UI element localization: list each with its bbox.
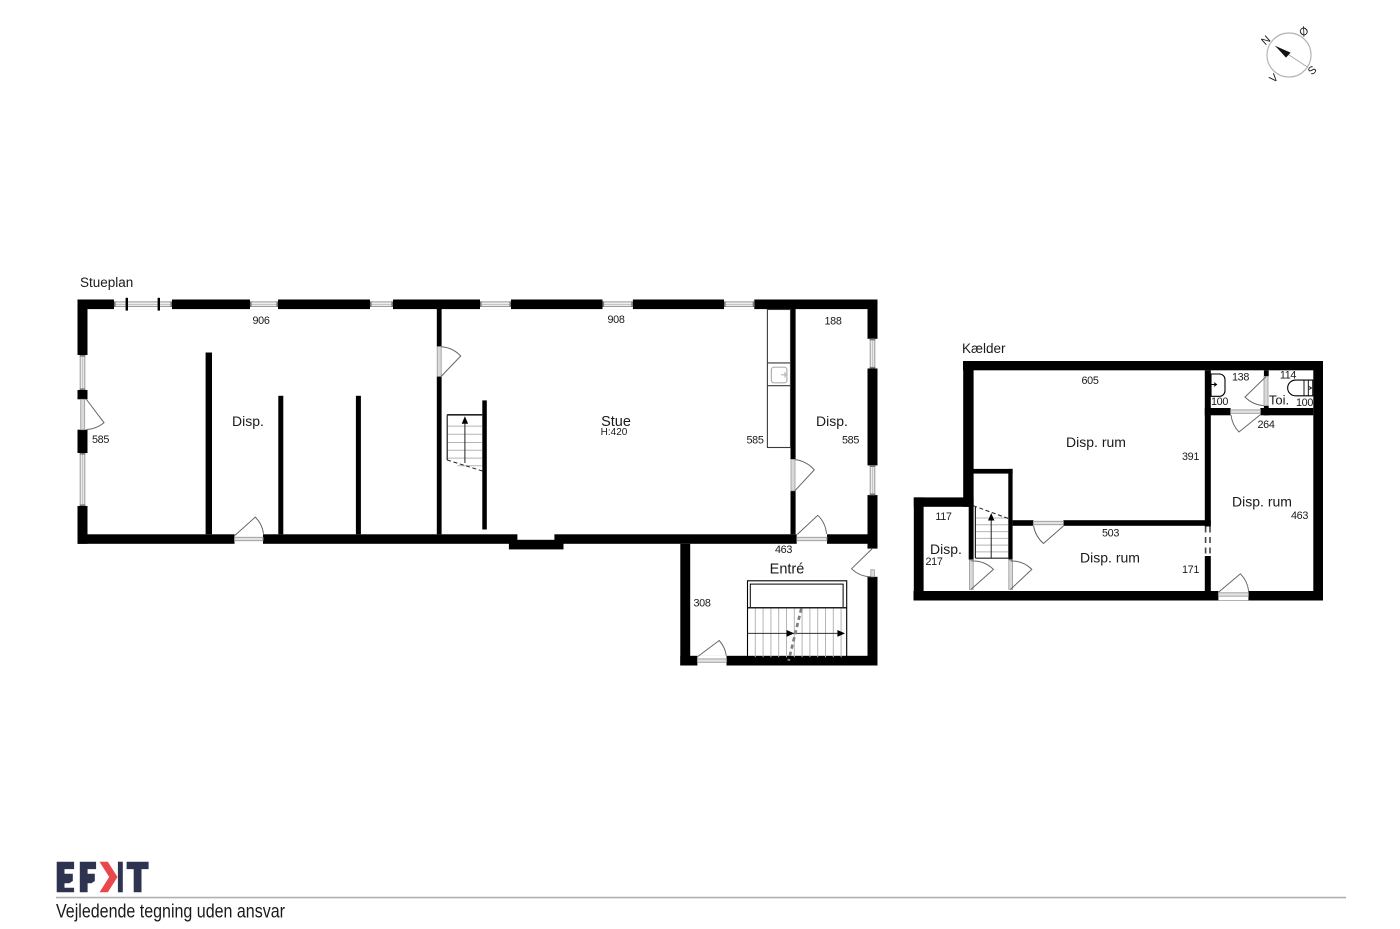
svg-text:Kælder: Kælder: [962, 341, 1006, 356]
svg-text:V: V: [1267, 71, 1281, 85]
svg-text:Ø: Ø: [1297, 24, 1312, 39]
svg-text:463: 463: [775, 544, 792, 556]
svg-text:463: 463: [1291, 510, 1308, 522]
svg-text:171: 171: [1182, 564, 1199, 576]
svg-text:Disp. rum: Disp. rum: [1066, 434, 1126, 450]
svg-text:100: 100: [1296, 397, 1313, 409]
svg-text:138: 138: [1232, 372, 1249, 384]
svg-text:117: 117: [935, 511, 952, 523]
svg-text:Disp. rum: Disp. rum: [1232, 494, 1292, 510]
svg-text:217: 217: [925, 556, 942, 568]
svg-text:100: 100: [1211, 396, 1228, 408]
svg-text:114: 114: [1280, 370, 1297, 382]
svg-text:N: N: [1259, 34, 1273, 48]
svg-text:391: 391: [1182, 451, 1199, 463]
svg-text:Disp. rum: Disp. rum: [1080, 550, 1140, 566]
svg-text:H:420: H:420: [601, 427, 628, 438]
svg-text:585: 585: [746, 435, 763, 447]
svg-text:605: 605: [1081, 375, 1098, 387]
svg-text:Disp.: Disp.: [816, 413, 848, 429]
svg-text:Entré: Entré: [770, 562, 805, 578]
svg-text:908: 908: [607, 314, 624, 326]
svg-text:Disp.: Disp.: [232, 413, 264, 429]
svg-text:308: 308: [693, 598, 710, 610]
svg-text:Vejledende tegning uden ansvar: Vejledende tegning uden ansvar: [56, 901, 285, 923]
svg-text:188: 188: [824, 316, 841, 328]
svg-text:Toi.: Toi.: [1269, 393, 1289, 408]
svg-text:906: 906: [252, 315, 269, 327]
svg-text:S: S: [1306, 64, 1319, 78]
svg-text:Disp.: Disp.: [930, 541, 962, 557]
svg-text:585: 585: [92, 434, 109, 446]
svg-text:264: 264: [1257, 419, 1274, 431]
svg-text:585: 585: [842, 435, 859, 447]
svg-text:503: 503: [1102, 528, 1119, 540]
svg-text:Stueplan: Stueplan: [80, 275, 133, 290]
